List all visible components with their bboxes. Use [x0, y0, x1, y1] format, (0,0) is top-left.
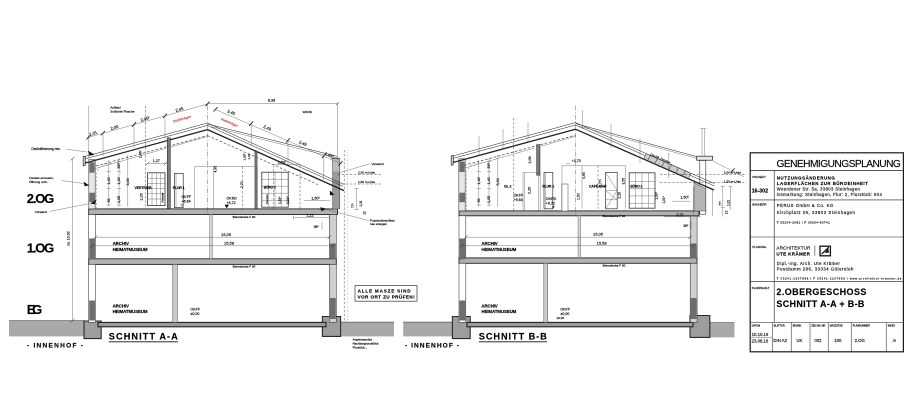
svg-text:GENEHMIGUNGSPLANUNG: GENEHMIGUNGSPLANUNG	[777, 159, 902, 170]
svg-text:neu anlegen: neu anlegen	[370, 222, 387, 226]
svg-text:ARCHIV: ARCHIV	[481, 303, 497, 308]
svg-text:1,50⁵: 1,50⁵	[311, 196, 320, 200]
svg-text:36⁵: 36⁵	[683, 224, 689, 228]
svg-text:59⁵: 59⁵	[487, 162, 491, 168]
svg-text:+6,64: +6,64	[514, 198, 523, 202]
svg-text:OKFF: OKFF	[182, 195, 192, 199]
svg-text:1,70¹: 1,70¹	[278, 160, 287, 164]
svg-text:15,05: 15,05	[593, 232, 604, 237]
svg-text:1,54⁵: 1,54⁵	[278, 196, 282, 204]
svg-text:OKFF: OKFF	[190, 308, 200, 312]
svg-text:- INNENHOF -: - INNENHOF -	[405, 343, 459, 350]
svg-text:2,26: 2,26	[528, 187, 532, 194]
svg-text:Flurstück...: Flurstück...	[353, 345, 368, 349]
svg-text:HEIMATMUSEUM: HEIMATMUSEUM	[481, 247, 516, 252]
svg-text:PERUS GmbH & Co. KG: PERUS GmbH & Co. KG	[777, 203, 834, 208]
svg-text:Öffnung vorh.: Öffnung vorh.	[29, 180, 48, 184]
svg-text:SCHNITT B-B: SCHNITT B-B	[479, 332, 547, 342]
svg-text:DIN A2: DIN A2	[773, 338, 787, 343]
svg-text:WAND: WAND	[303, 110, 313, 114]
svg-text:100: 100	[834, 338, 842, 343]
svg-text:PROJEKT: PROJEKT	[752, 175, 766, 179]
svg-text:2,70: 2,70	[240, 181, 244, 188]
svg-text:Gemarkung: Steinhagen, Flur: 2: Gemarkung: Steinhagen, Flur: 2, Flurstüc…	[777, 192, 883, 197]
svg-text:NUTZUNGSÄNDERUNG: NUTZUNGSÄNDERUNG	[777, 176, 836, 181]
svg-text:+6,72: +6,72	[546, 201, 555, 205]
svg-text:±0,00: ±0,00	[557, 316, 565, 320]
svg-text:T 05241-2207988 I F 05241-2207: T 05241-2207988 I F 05241-2207883 I www.…	[777, 277, 902, 281]
svg-text:+6,72: +6,72	[227, 201, 236, 205]
svg-text:INDEX: INDEX	[888, 325, 896, 328]
svg-text:Schlichte Flasche: Schlichte Flasche	[110, 109, 135, 113]
svg-text:2,26: 2,26	[618, 192, 622, 199]
svg-text:Fenster: Fenster	[265, 194, 269, 204]
svg-text:Postdamm 286, 33334 Gütersloh: Postdamm 286, 33334 Gütersloh	[777, 267, 854, 272]
svg-text:Vorwand: Vorwand	[35, 210, 47, 214]
svg-text:59⁵: 59⁵	[117, 162, 121, 168]
svg-text:1,40: 1,40	[477, 177, 481, 184]
svg-text:VERTRIEB: VERTRIEB	[135, 186, 152, 190]
svg-text:2,22: 2,22	[676, 213, 683, 217]
svg-text:3,55: 3,55	[622, 178, 626, 185]
svg-text:MASZSTAB: MASZSTAB	[830, 325, 843, 328]
svg-text:3,77¹: 3,77¹	[598, 178, 602, 187]
svg-text:HEIMATMUSEUM: HEIMATMUSEUM	[113, 247, 148, 252]
svg-text:T 05204-2082 I F 05204-80741: T 05204-2082 I F 05204-80741	[777, 221, 830, 225]
svg-text:1.OG: 1.OG	[27, 240, 55, 255]
svg-text:2,06¹: 2,06¹	[139, 149, 143, 158]
svg-text:OKFF: OKFF	[560, 308, 570, 312]
svg-text:1,90⁵: 1,90⁵	[655, 191, 659, 199]
svg-text:Betondecke F 90: Betondecke F 90	[603, 263, 626, 267]
svg-text:LAGERFLÄCHEN ZUR BÜROEINHEIT: LAGERFLÄCHEN ZUR BÜROEINHEIT	[777, 181, 868, 186]
svg-text:ca. 10,62: ca. 10,62	[66, 231, 70, 246]
svg-text:002: 002	[814, 338, 822, 343]
svg-text:BÜRO 2: BÜRO 2	[630, 184, 642, 188]
svg-text:Dipl.-Ing. Arch. Ute Krämer: Dipl.-Ing. Arch. Ute Krämer	[777, 261, 841, 266]
svg-text:1,68⁵: 1,68⁵	[243, 153, 247, 161]
svg-text:Vorwand: Vorwand	[372, 162, 384, 166]
svg-text:ARCHIV: ARCHIV	[113, 241, 129, 246]
svg-text:2.OBERGESCHOSS: 2.OBERGESCHOSS	[776, 287, 866, 297]
svg-text:HEIMATMUSEUM: HEIMATMUSEUM	[113, 309, 148, 314]
svg-text:1,50 m-Linie: 1,50 m-Linie	[724, 179, 741, 183]
svg-text:1,50: 1,50	[576, 193, 580, 200]
svg-text:ARCHITEKTUR: ARCHITEKTUR	[776, 246, 811, 251]
svg-text:12: 12	[724, 210, 728, 214]
svg-text:+2,70: +2,70	[572, 159, 581, 163]
svg-text:1,50⁵: 1,50⁵	[680, 195, 689, 199]
svg-text:.6: .6	[892, 338, 896, 343]
svg-text:2,00 m-Linie: 2,00 m-Linie	[358, 170, 375, 174]
svg-text:1,40: 1,40	[487, 177, 491, 184]
svg-text:3,04: 3,04	[496, 178, 500, 185]
svg-text:SCHNITT A-A + B-B: SCHNITT A-A + B-B	[776, 299, 865, 309]
svg-text:1,31: 1,31	[359, 200, 363, 206]
svg-text:BLATTGR.: BLATTGR.	[774, 325, 786, 328]
svg-text:Kirchplatz 26, 33803 Steinhage: Kirchplatz 26, 33803 Steinhagen	[777, 210, 856, 215]
svg-text:Woerdener Str. 5a, 33803 Stein: Woerdener Str. 5a, 33803 Steinhagen	[777, 186, 861, 191]
svg-text:±0,00: ±0,00	[190, 312, 199, 316]
svg-text:1,02: 1,02	[247, 153, 251, 159]
svg-text:1,01⁵: 1,01⁵	[662, 195, 666, 203]
svg-text:BAUHERR: BAUHERR	[752, 202, 766, 206]
svg-text:93: 93	[107, 198, 111, 202]
svg-text:16-302: 16-302	[752, 188, 768, 194]
svg-text:OKFF: OKFF	[514, 193, 524, 197]
svg-text:1,31: 1,31	[727, 200, 731, 206]
svg-text:UK: UK	[796, 338, 802, 343]
svg-text:1,40: 1,40	[107, 177, 111, 184]
svg-text:1,50 m-Linie: 1,50 m-Linie	[358, 180, 375, 184]
svg-text:VOR ORT ZU PRÜFEN!: VOR ORT ZU PRÜFEN!	[358, 293, 415, 299]
svg-text:Betondecke F 90: Betondecke F 90	[233, 215, 256, 219]
svg-text:1,27: 1,27	[153, 159, 160, 163]
svg-text:23.08.16: 23.08.16	[752, 339, 769, 344]
svg-text:ALLE MASZE SIND: ALLE MASZE SIND	[358, 288, 412, 293]
svg-text:PLANINHALT: PLANINHALT	[752, 286, 770, 290]
svg-text:15,05: 15,05	[221, 232, 232, 237]
svg-text:HEIMATMUSEUM: HEIMATMUSEUM	[481, 309, 516, 314]
svg-text:3,04: 3,04	[126, 178, 130, 185]
svg-text:GL 2: GL 2	[504, 184, 511, 188]
svg-text:1,05: 1,05	[487, 196, 491, 203]
svg-text:PLANUNG: PLANUNG	[752, 245, 767, 249]
svg-text:DATUM: DATUM	[752, 325, 760, 328]
svg-text:+6,64: +6,64	[182, 200, 191, 204]
svg-text:ARCHIV: ARCHIV	[113, 303, 129, 308]
svg-text:12: 12	[363, 211, 367, 215]
svg-text:FLUR 1: FLUR 1	[173, 186, 185, 190]
svg-text:2,22: 2,22	[307, 213, 314, 217]
svg-text:2.OG: 2.OG	[855, 338, 866, 343]
svg-text:Dachdämmung neu: Dachdämmung neu	[31, 147, 60, 151]
svg-text:38⁵: 38⁵	[314, 225, 320, 229]
svg-text:2.OG: 2.OG	[27, 191, 55, 206]
svg-text:FLUR 1: FLUR 1	[542, 184, 554, 188]
svg-text:BEARB.: BEARB.	[793, 325, 802, 328]
svg-text:UTE KRÄMER: UTE KRÄMER	[776, 250, 810, 256]
svg-text:EG: EG	[27, 302, 43, 317]
svg-text:Betondecke F 90: Betondecke F 90	[233, 265, 256, 269]
svg-text:2,26: 2,26	[140, 193, 144, 200]
svg-text:4,95: 4,95	[214, 166, 218, 173]
svg-text:Fenster: Fenster	[161, 193, 165, 203]
svg-text:1,01⁵: 1,01⁵	[286, 196, 290, 204]
svg-text:8,38: 8,38	[268, 99, 275, 103]
svg-text:BÜRO 2: BÜRO 2	[264, 186, 276, 190]
svg-text:93: 93	[477, 198, 481, 202]
svg-text:1,40: 1,40	[117, 177, 121, 184]
svg-text:2,06¹: 2,06¹	[528, 155, 532, 164]
svg-text:ZEICHN.-NR.: ZEICHN.-NR.	[811, 325, 826, 328]
svg-text:15,58: 15,58	[224, 241, 235, 246]
svg-text:77⁵: 77⁵	[719, 200, 723, 206]
svg-text:OKRD: OKRD	[546, 197, 557, 201]
svg-text:77⁵: 77⁵	[351, 202, 355, 208]
svg-text:4,95: 4,95	[582, 172, 586, 179]
svg-text:Betondecke F 90: Betondecke F 90	[603, 214, 626, 218]
svg-text:10.10.16: 10.10.16	[752, 332, 769, 337]
svg-text:ARCHIV: ARCHIV	[481, 241, 497, 246]
svg-text:15,58: 15,58	[597, 241, 608, 246]
svg-text:1,05: 1,05	[117, 196, 121, 203]
svg-text:PLANNUMMER: PLANNUMMER	[853, 325, 870, 328]
svg-text:OKRD: OKRD	[227, 197, 238, 201]
svg-text:SCHNITT A-A: SCHNITT A-A	[109, 332, 178, 342]
